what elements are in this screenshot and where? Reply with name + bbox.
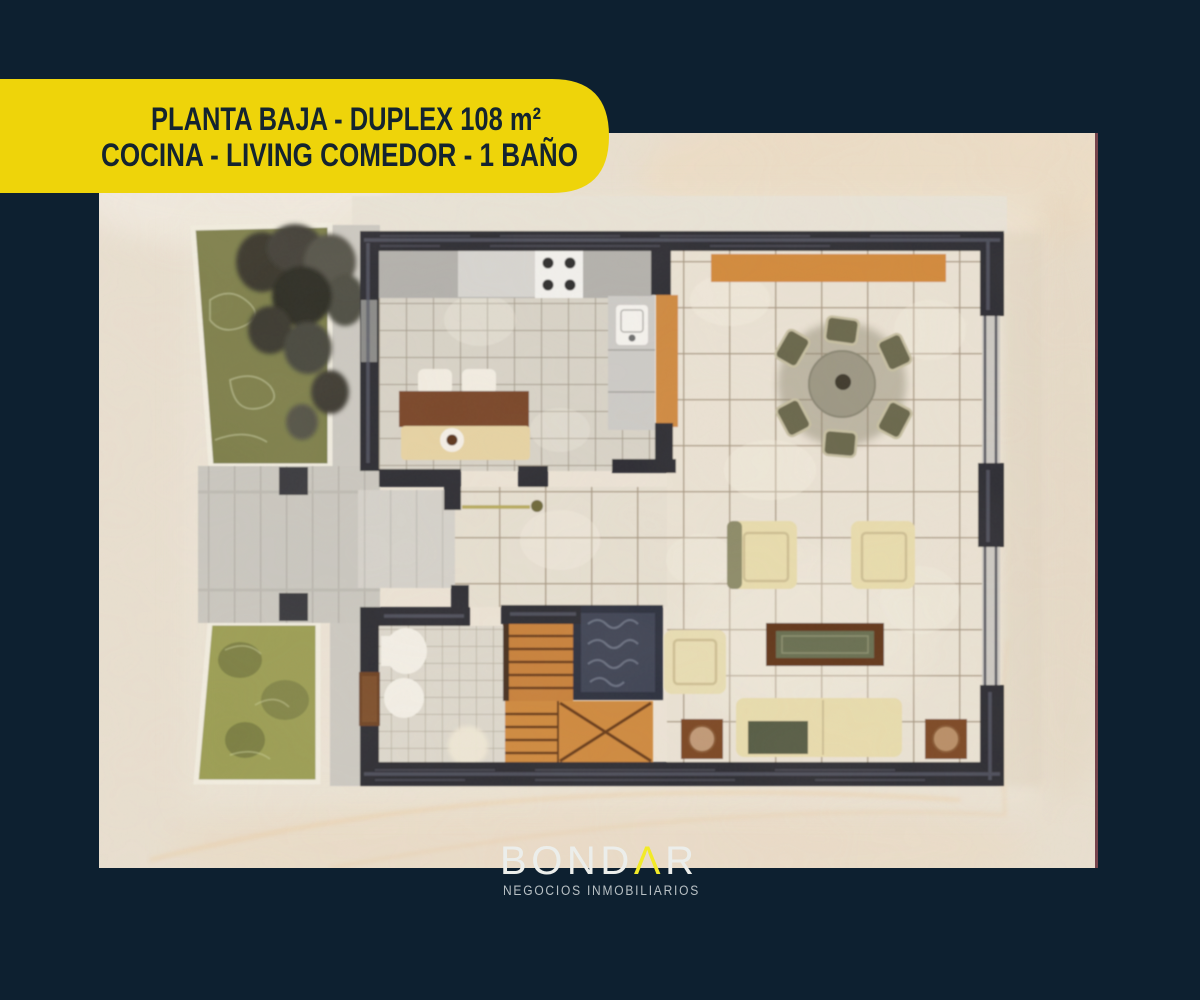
svg-text:BONDΛR: BONDΛR — [500, 839, 698, 883]
svg-text:COCINA - LIVING COMEDOR - 1 BA: COCINA - LIVING COMEDOR - 1 BAÑO — [101, 137, 578, 173]
svg-text:PLANTA BAJA - DUPLEX 108 m²: PLANTA BAJA - DUPLEX 108 m² — [151, 101, 541, 137]
svg-text:NEGOCIOS INMOBILIARIOS: NEGOCIOS INMOBILIARIOS — [503, 883, 700, 898]
